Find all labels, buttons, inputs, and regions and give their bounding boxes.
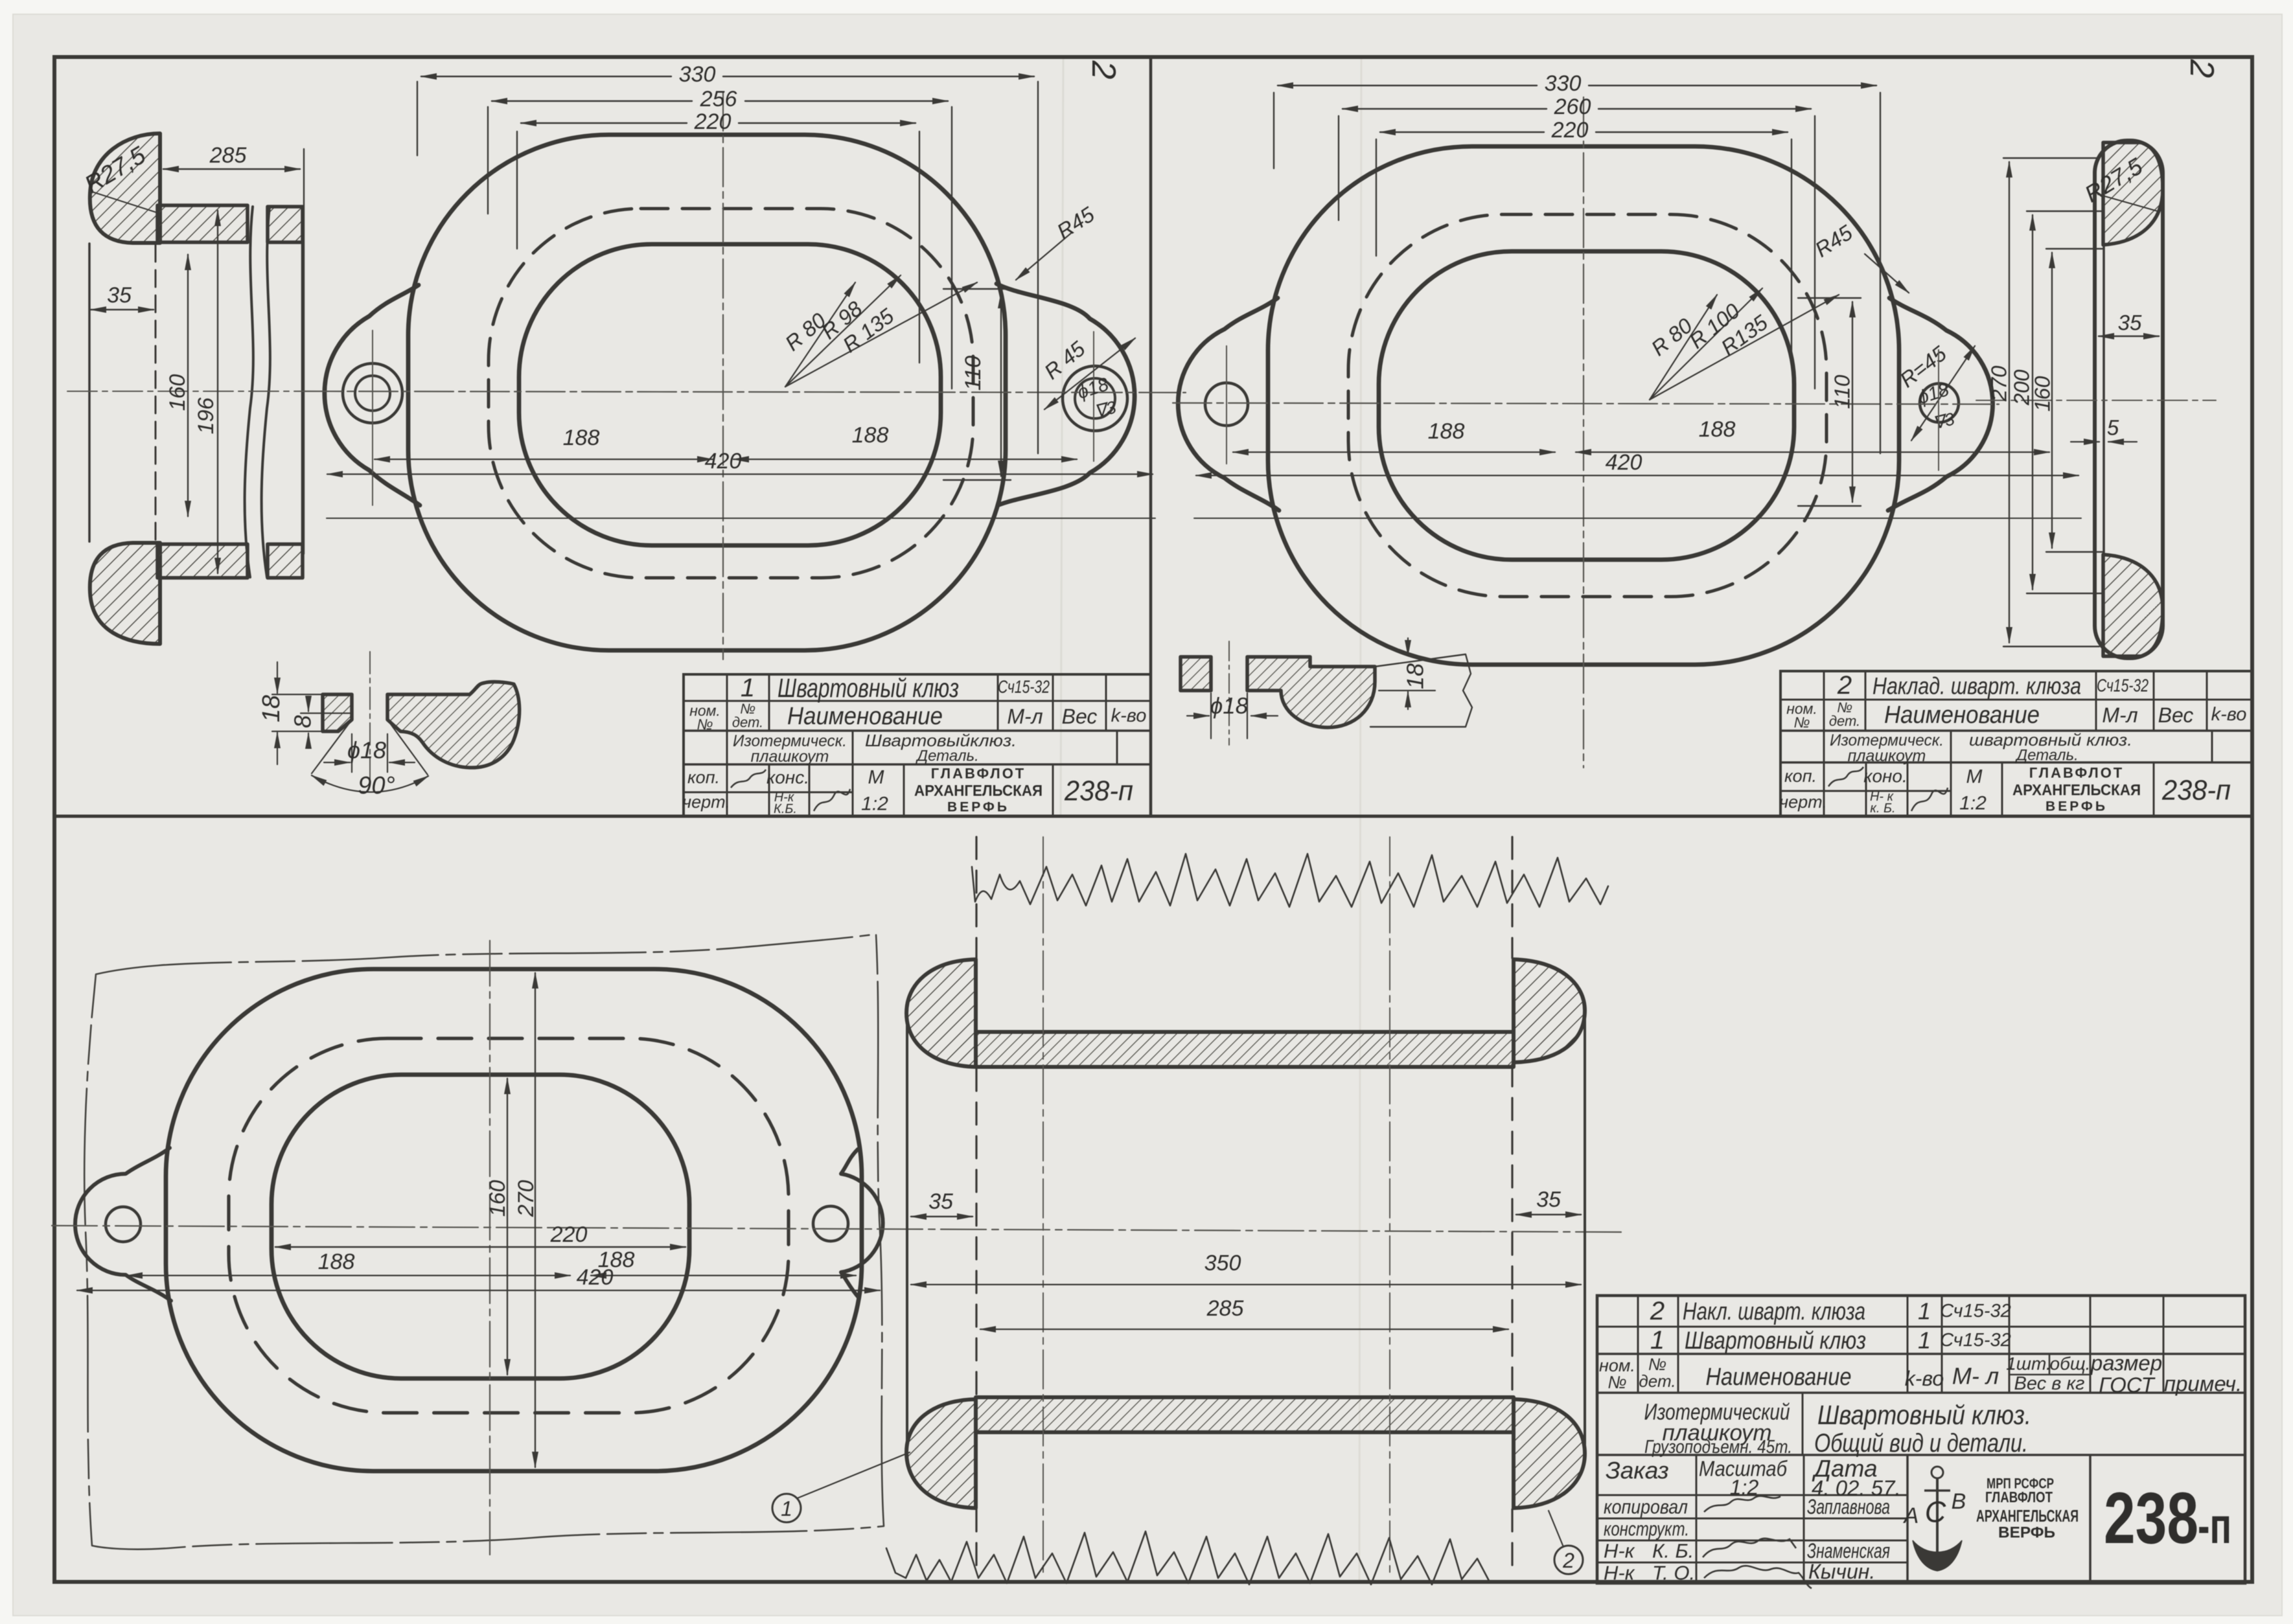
svg-text:Заказ: Заказ [1606, 1458, 1669, 1484]
svg-text:160: 160 [485, 1180, 510, 1217]
svg-text:размер: размер [2090, 1351, 2162, 1375]
svg-text:188: 188 [1428, 419, 1465, 444]
svg-text:1: 1 [1918, 1327, 1931, 1354]
svg-text:350: 350 [1204, 1251, 1241, 1275]
svg-text:Знаменская: Знаменская [1807, 1539, 1890, 1562]
svg-text:188: 188 [318, 1250, 355, 1274]
svg-text:Наименование: Наименование [1706, 1364, 1852, 1391]
svg-text:2: 2 [2183, 59, 2220, 78]
svg-text:35: 35 [1536, 1187, 1561, 1212]
svg-text:коно.: коно. [1863, 766, 1907, 786]
svg-text:Т. О.: Т. О. [1652, 1562, 1695, 1584]
svg-text:Деталь.: Деталь. [915, 748, 979, 765]
svg-text:160: 160 [165, 374, 190, 411]
svg-text:коп.: коп. [687, 768, 720, 787]
svg-text:примеч.: примеч. [2164, 1372, 2242, 1396]
svg-text:Деталь.: Деталь. [2014, 747, 2079, 764]
svg-text:Вес: Вес [1062, 705, 1098, 728]
svg-text:35: 35 [2118, 311, 2142, 335]
svg-text:М-л: М-л [2102, 703, 2137, 727]
svg-text:330: 330 [679, 62, 716, 87]
svg-text:С: С [1925, 1496, 1946, 1529]
svg-text:АРХАНГЕЛЬСКАЯ: АРХАНГЕЛЬСКАЯ [914, 783, 1043, 800]
svg-text:ГЛАВФЛОТ: ГЛАВФЛОТ [931, 766, 1026, 782]
svg-text:Кычин.: Кычин. [1808, 1560, 1875, 1583]
svg-text:ВЕРФЬ: ВЕРФЬ [2045, 799, 2108, 814]
svg-text:дет.: дет. [1639, 1371, 1676, 1391]
svg-text:ГЛАВФЛОТ: ГЛАВФЛОТ [1985, 1489, 2053, 1505]
svg-text:АРХАНГЕЛЬСКАЯ: АРХАНГЕЛЬСКАЯ [2012, 782, 2141, 799]
svg-text:1:2: 1:2 [1730, 1476, 1759, 1499]
svg-text:220: 220 [694, 109, 732, 134]
svg-text:Заплавнова: Заплавнова [1807, 1495, 1890, 1518]
svg-text:420: 420 [705, 449, 742, 474]
svg-text:k-во: k-во [1111, 705, 1147, 726]
svg-text:110: 110 [961, 356, 985, 391]
svg-text:1:2: 1:2 [861, 794, 888, 815]
svg-text:плашкоут: плашкоут [1848, 747, 1926, 765]
svg-text:ГОСТ: ГОСТ [2099, 1373, 2156, 1397]
svg-text:k-во: k-во [2211, 704, 2247, 725]
svg-text:К.Б.: К.Б. [774, 802, 797, 816]
svg-text:коп.: коп. [1784, 766, 1817, 786]
svg-text:260: 260 [1554, 95, 1591, 119]
svg-text:ϕ18: ϕ18 [347, 737, 386, 764]
svg-text:конс.: конс. [766, 768, 809, 788]
svg-text:черт.: черт. [682, 792, 730, 812]
svg-text:238-п: 238-п [1064, 775, 1133, 807]
svg-text:-п: -п [2198, 1497, 2231, 1554]
svg-text:ϕ18: ϕ18 [1210, 694, 1249, 719]
svg-text:№: № [1607, 1373, 1626, 1392]
svg-text:k-во: k-во [1905, 1367, 1944, 1390]
svg-text:285: 285 [209, 143, 247, 168]
svg-text:к. Б.: к. Б. [1870, 801, 1895, 816]
svg-text:М: М [868, 767, 884, 788]
svg-text:196: 196 [194, 398, 218, 435]
svg-text:1: 1 [1650, 1326, 1665, 1355]
svg-text:2: 2 [1650, 1297, 1665, 1325]
svg-text:1: 1 [1918, 1298, 1931, 1325]
svg-text:Накл. шварт. клюза: Накл. шварт. клюза [1683, 1298, 1865, 1325]
svg-text:А: А [1903, 1504, 1919, 1528]
svg-text:Швартовный клюз.: Швартовный клюз. [1817, 1400, 2031, 1430]
svg-text:Сч15-32: Сч15-32 [1940, 1330, 2011, 1351]
svg-text:35: 35 [928, 1189, 953, 1214]
svg-text:18: 18 [258, 695, 285, 722]
svg-text:2: 2 [1562, 1549, 1574, 1572]
svg-text:Вес: Вес [2158, 703, 2194, 727]
svg-text:Сч15-32: Сч15-32 [998, 677, 1050, 697]
svg-text:черт.: черт. [1779, 792, 1827, 812]
svg-text:В: В [1952, 1489, 1966, 1514]
svg-text:188: 188 [1699, 417, 1736, 442]
svg-text:Наименование: Наименование [787, 703, 943, 730]
svg-text:К. Б.: К. Б. [1652, 1540, 1694, 1562]
svg-text:8: 8 [290, 715, 316, 728]
svg-text:АРХАНГЕЛЬСКАЯ: АРХАНГЕЛЬСКАЯ [1976, 1506, 2079, 1526]
svg-text:256: 256 [700, 87, 737, 111]
svg-text:ВЕРФЬ: ВЕРФЬ [947, 800, 1009, 815]
svg-text:1шт.: 1шт. [2006, 1354, 2051, 1374]
svg-text:дет.: дет. [1829, 713, 1860, 729]
svg-text:285: 285 [1206, 1296, 1244, 1321]
svg-text:220: 220 [1551, 118, 1589, 143]
svg-text:330: 330 [1545, 71, 1582, 96]
svg-text:М: М [1966, 766, 1983, 788]
svg-text:1: 1 [781, 1497, 792, 1520]
svg-text:Общий вид и детали.: Общий вид и детали. [1814, 1429, 2028, 1458]
svg-text:копировал: копировал [1604, 1496, 1688, 1518]
svg-text:Сч15-32: Сч15-32 [2097, 676, 2149, 696]
svg-text:270: 270 [1987, 365, 2011, 402]
svg-text:Грузоподъемн. 45т.: Грузоподъемн. 45т. [1644, 1437, 1792, 1458]
svg-text:ГЛАВФЛОТ: ГЛАВФЛОТ [2029, 765, 2125, 781]
svg-text:270: 270 [514, 1180, 538, 1218]
svg-text:Н-к: Н-к [1604, 1562, 1635, 1584]
svg-text:Швартовный клюз: Швартовный клюз [1685, 1327, 1866, 1355]
svg-text:№: № [1794, 714, 1810, 731]
svg-text:188: 188 [852, 423, 889, 448]
svg-text:№: № [697, 716, 713, 733]
svg-text:238: 238 [2104, 1478, 2198, 1559]
svg-text:160: 160 [2031, 376, 2055, 412]
svg-text:420: 420 [577, 1265, 614, 1290]
svg-text:188: 188 [563, 426, 600, 450]
svg-text:Н-к: Н-к [1604, 1540, 1635, 1562]
svg-text:110: 110 [1830, 374, 1854, 409]
svg-text:5: 5 [2107, 416, 2119, 440]
svg-text:Сч15-32: Сч15-32 [1940, 1301, 2011, 1321]
svg-text:2: 2 [1085, 60, 1122, 80]
svg-text:1:2: 1:2 [1959, 793, 1987, 814]
svg-text:Швартовный клюз: Швартовный клюз [778, 673, 959, 703]
svg-text:М-л: М-л [1007, 705, 1043, 728]
svg-text:35: 35 [107, 283, 132, 308]
svg-text:420: 420 [1606, 450, 1642, 475]
svg-text:90°: 90° [358, 772, 395, 799]
svg-text:плашкоут: плашкоут [751, 748, 829, 766]
svg-text:ВЕРФЬ: ВЕРФЬ [1998, 1524, 2055, 1542]
svg-text:1: 1 [741, 674, 755, 702]
svg-text:238-п: 238-п [2161, 775, 2231, 806]
svg-text:М- л: М- л [1952, 1363, 1999, 1390]
svg-text:конструкт.: конструкт. [1604, 1518, 1689, 1540]
svg-text:дет.: дет. [732, 715, 763, 731]
svg-text:Наклад. шварт. клюза: Наклад. шварт. клюза [1872, 673, 2081, 700]
svg-text:Вес в кг: Вес в кг [2014, 1373, 2085, 1394]
svg-text:220: 220 [550, 1222, 588, 1247]
svg-text:18: 18 [1402, 663, 1429, 689]
svg-text:Наименование: Наименование [1884, 702, 2040, 729]
svg-text:2: 2 [1837, 671, 1852, 700]
svg-text:общ.: общ. [2050, 1354, 2091, 1374]
